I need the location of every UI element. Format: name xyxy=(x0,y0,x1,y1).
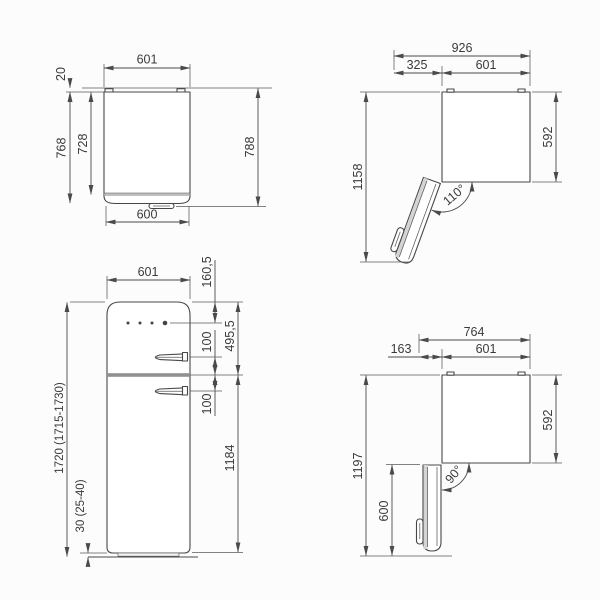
dim-lower-handle-offset-label: 100 xyxy=(200,394,214,415)
dim-top-to-controls-label: 160,5 xyxy=(200,256,214,287)
fridge-cabinet-top-view xyxy=(442,375,530,463)
dim-overall-height-label: 1720 (1715-1730) xyxy=(54,382,66,474)
dim-overall-width-label: 764 xyxy=(464,325,485,339)
dim-depth-label: 592 xyxy=(541,127,555,148)
dim-depth-label: 592 xyxy=(541,410,555,431)
dimension-diagram-canvas: 601 20 768 728 788 600 xyxy=(0,0,600,600)
dim-width-label: 601 xyxy=(137,53,158,67)
door-divider xyxy=(107,373,190,377)
plinth xyxy=(118,553,179,556)
dim-width-label: 601 xyxy=(476,58,497,72)
dim-upper-handle-offset-label: 100 xyxy=(200,332,214,353)
dim-door-clearance-label: 163 xyxy=(391,342,412,356)
fridge-cabinet-top-view xyxy=(104,92,190,196)
dim-overall-width-label: 926 xyxy=(452,41,473,55)
fridge-cabinet-top-view xyxy=(442,92,530,182)
view-front: 601 1720 (1715-1730) 30 (25-40) 160,5 10… xyxy=(54,256,243,565)
dim-wall-gap-label: 20 xyxy=(54,67,68,81)
dim-top-to-door-split-label: 495,5 xyxy=(223,320,237,351)
dim-width-label: 601 xyxy=(138,265,159,279)
dim-overall-depth-label: 1197 xyxy=(351,453,365,480)
dim-depth-overall-label: 788 xyxy=(243,137,257,158)
fridge-front-outline xyxy=(107,302,190,553)
open-door-90 xyxy=(417,465,442,551)
hinge-left xyxy=(447,89,454,92)
open-door-110 xyxy=(388,175,441,265)
dim-feet-height-label: 30 (25-40) xyxy=(75,479,87,532)
dim-width-label: 601 xyxy=(476,342,497,356)
door-face-shading xyxy=(424,465,428,549)
dim-door-projection-label: 600 xyxy=(377,501,391,522)
dim-lower-door-height-label: 1184 xyxy=(223,445,237,472)
dim-depth-cabinet-label: 728 xyxy=(76,134,90,155)
hinge-right xyxy=(177,89,185,92)
view-top-closed: 601 20 768 728 788 600 xyxy=(54,53,272,227)
dim-overall-depth-label: 1158 xyxy=(351,164,365,191)
hinge-right xyxy=(518,372,525,375)
dim-depth-with-door-label: 768 xyxy=(55,138,69,159)
view-top-open-90: 90° 764 163 601 592 1197 600 xyxy=(351,325,562,556)
dim-front-width-label: 600 xyxy=(137,208,158,222)
hinge-right xyxy=(518,89,525,92)
dim-door-clearance-label: 325 xyxy=(407,58,428,72)
hinge-left xyxy=(447,372,454,375)
hinge-left xyxy=(105,89,113,92)
door-angle-label: 110° xyxy=(440,182,468,209)
door-front-curve xyxy=(104,196,190,204)
door-angle-label: 90° xyxy=(442,463,465,486)
dimension-diagram: 601 20 768 728 788 600 xyxy=(0,0,600,600)
view-top-open-110: 110° 926 325 601 592 1158 xyxy=(351,41,562,265)
